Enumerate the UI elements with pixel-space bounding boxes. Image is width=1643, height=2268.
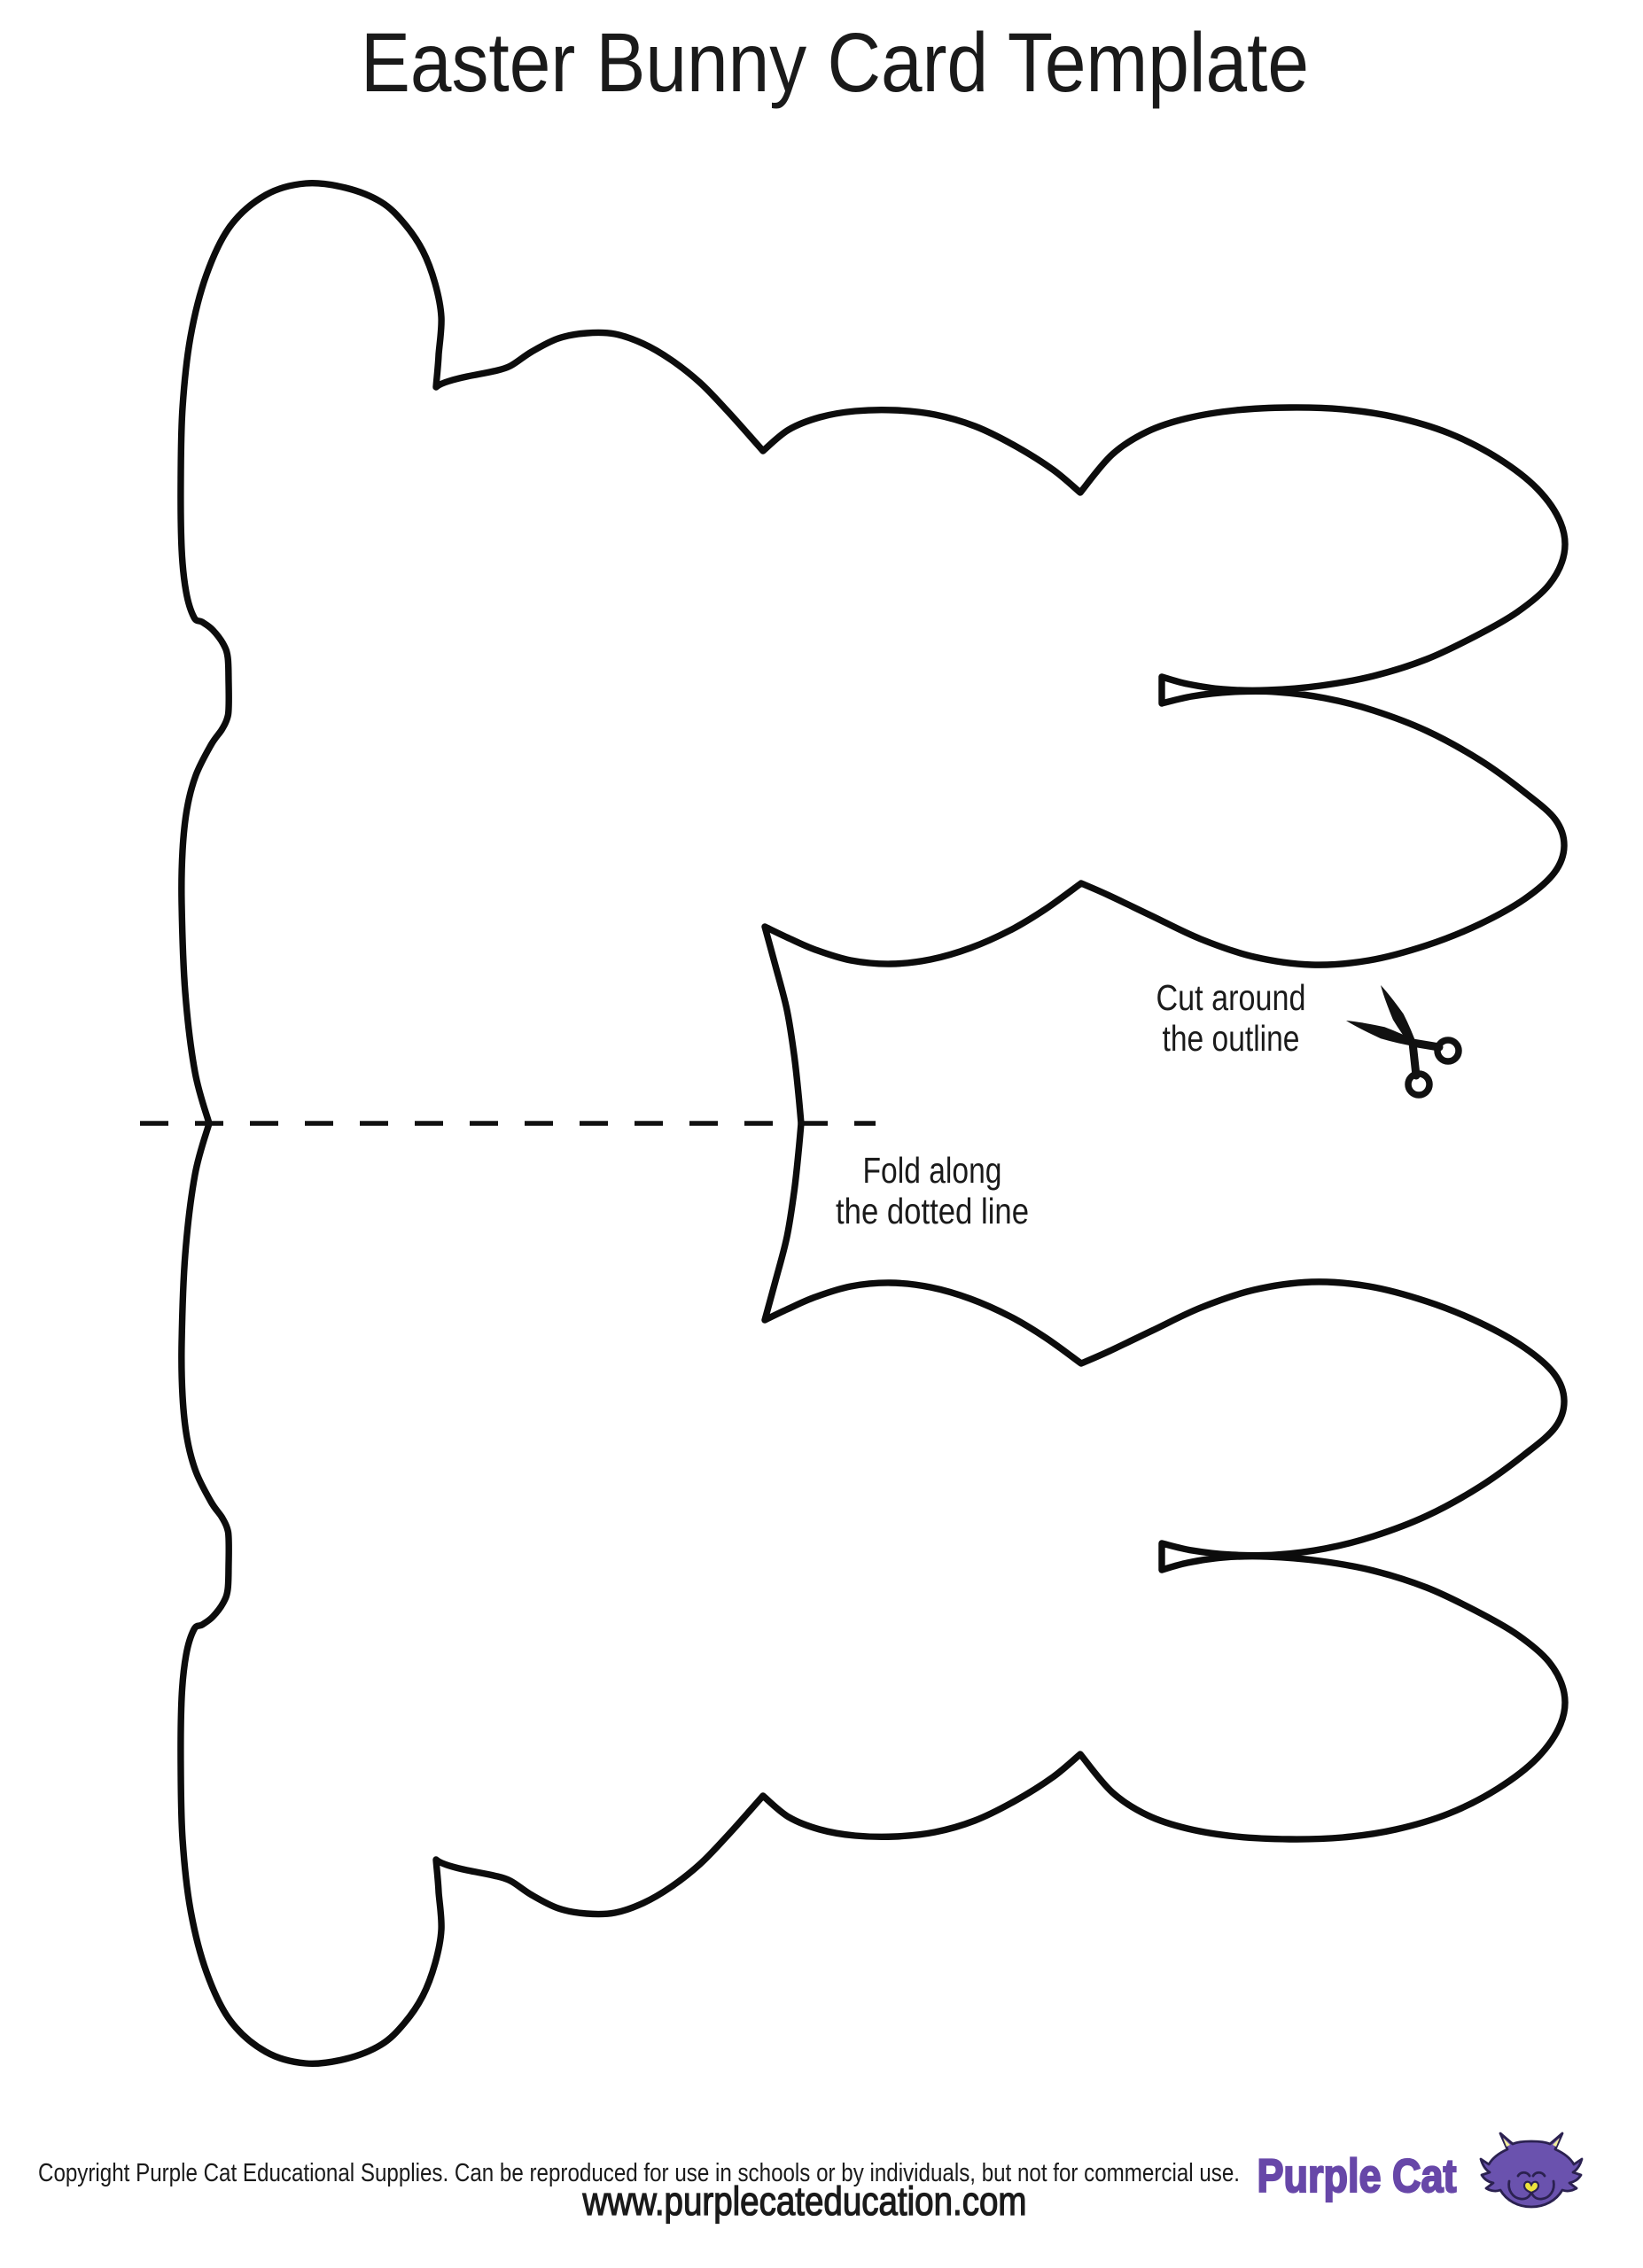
svg-text:www.purplecateducation.com: www.purplecateducation.com (582, 2179, 1027, 2224)
svg-text:Purple Cat: Purple Cat (1258, 2150, 1457, 2202)
svg-text:the dotted line: the dotted line (836, 1191, 1029, 1231)
svg-text:Fold along: Fold along (863, 1150, 1002, 1191)
svg-text:Cut around: Cut around (1156, 977, 1306, 1018)
svg-text:Easter Bunny Card Template: Easter Bunny Card Template (361, 16, 1309, 110)
svg-text:the outline: the outline (1163, 1018, 1300, 1059)
